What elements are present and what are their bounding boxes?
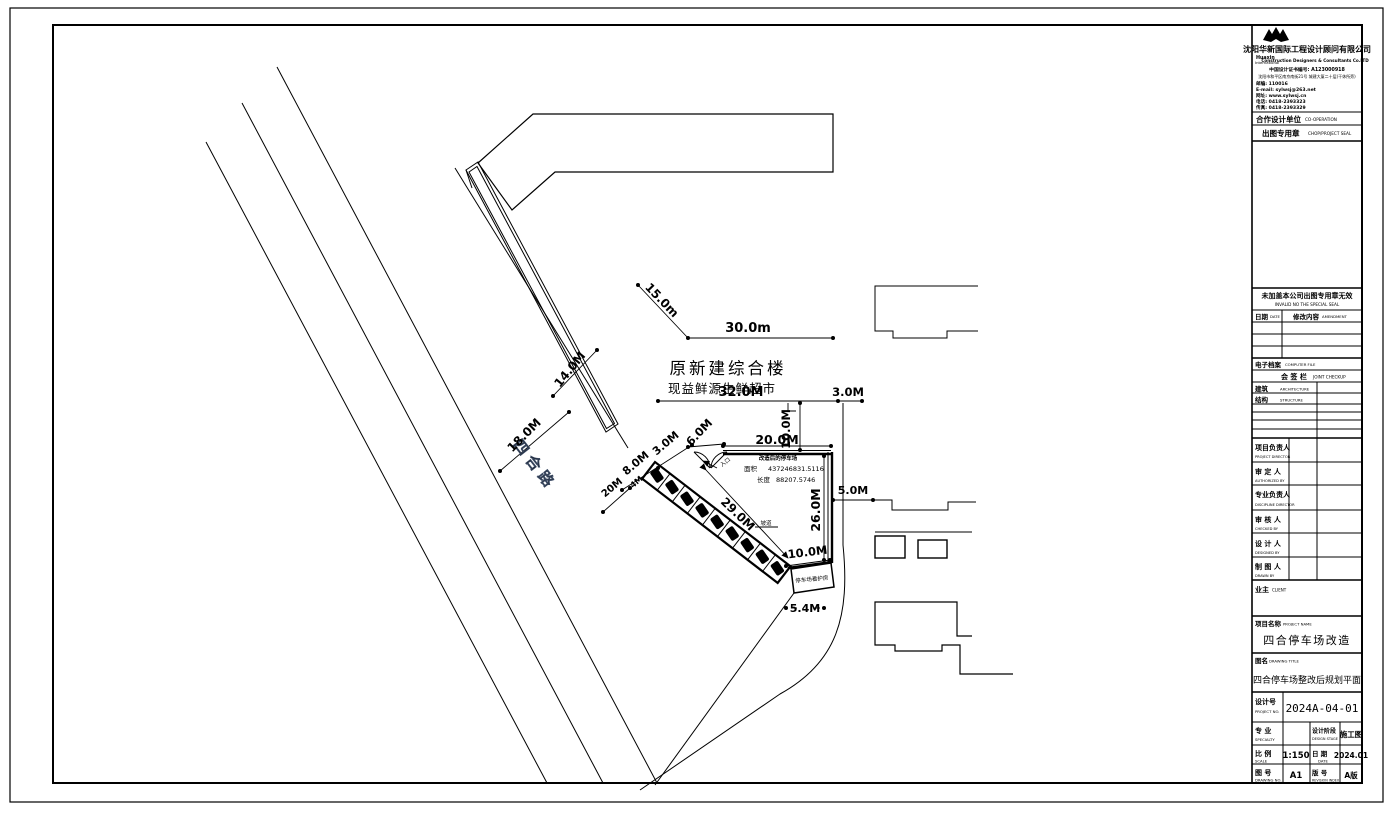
right-building-middle (873, 500, 976, 558)
building-label-main: 原新建综合楼 (670, 359, 787, 378)
company-fax: 传真: 0418-2393329 (1255, 104, 1306, 111)
rev-label-en: REVISION INDEX (1312, 779, 1340, 783)
cad-canvas: 原新建综合楼 现益鲜源生鲜超市 四合路 改造后的停车场 面积 437246831… (0, 0, 1392, 813)
dim-5-4m: 5.4M (790, 602, 820, 615)
company-web: 网址: www.sylwsj.cn (1256, 92, 1306, 99)
sheet-frame (10, 8, 1383, 802)
struct-label-cn: 结构 (1255, 395, 1269, 404)
design-no-label-en: PROJECT NO. (1255, 709, 1280, 714)
arch-label-en: ARCHITECTURE (1280, 387, 1310, 392)
drawing-title-label-en: DRAWING TITLE (1269, 659, 1300, 664)
invalid-note-en: INVALID NO THE SPECIAL SEAL (1275, 302, 1340, 307)
company-logo-icon (1263, 27, 1289, 42)
design-no-label-cn: 设计号 (1255, 697, 1276, 706)
specialty-label-en: SPECIALTY (1255, 737, 1275, 742)
rev-date-en: DATE (1270, 314, 1280, 319)
dwg-no-value: A1 (1290, 771, 1303, 781)
dwg-no-label-en: DRAWING NO. (1255, 778, 1282, 783)
design-no-value: 2024A-04-01 (1286, 702, 1359, 715)
personnel-label-cn: 专业负责人 (1255, 490, 1291, 499)
dim-30m: 30.0m (725, 321, 771, 336)
drawing-sheet: 原新建综合楼 现益鲜源生鲜超市 四合路 改造后的停车场 面积 437246831… (0, 0, 1392, 813)
curb-strip (466, 162, 618, 432)
company-cert: 中国设计证书编号: A123000918 (1269, 66, 1345, 73)
date-label-cn: 日 期 (1312, 749, 1328, 758)
length-value: 88207.5746 (776, 476, 815, 484)
rev-amend-en: AMENDMENT (1322, 314, 1348, 319)
client-label-en: CLIENT (1272, 588, 1287, 593)
personnel-label-cn: 审 定 人 (1255, 467, 1282, 476)
joint-label-cn: 会 签 栏 (1281, 372, 1307, 381)
dim-10m-bottom: 10.0M (787, 543, 828, 562)
company-tel: 电话: 0418-2393323 (1256, 98, 1306, 105)
project-name-value: 四合停车场改造 (1263, 633, 1351, 647)
dim-3m: 3.0M (832, 385, 864, 399)
personnel-label-en: DRAWN BY (1255, 574, 1275, 578)
company-address: 沈阳市和平区南京南街21号 城建大厦二十层(干休所旁) (1258, 73, 1356, 79)
seal-row-label-cn: 出图专用章 (1262, 128, 1300, 138)
date-label-en: DATE (1318, 759, 1328, 764)
company-name-cn: 沈阳华新国际工程设计顾问有限公司 (1243, 44, 1371, 54)
company-zip: 邮编: 110016 (1256, 80, 1288, 87)
guard-house-label: 停车场看护房 (795, 574, 829, 585)
dim-5m: 5.0M (838, 484, 868, 497)
scale-label-en: SCALE (1255, 759, 1268, 764)
dim-32m: 32.0M (718, 385, 763, 400)
title-block: 沈阳华新国际工程设计顾问有限公司 Huaxin International Co… (1243, 25, 1371, 783)
scale-label-cn: 比 例 (1255, 749, 1271, 758)
stage-value: 施工图 (1340, 729, 1363, 739)
scale-value: 1:150 (1282, 751, 1309, 761)
personnel-label-en: DISCIPLINE DIRECTOR (1255, 503, 1295, 507)
project-label-en: PROJECT NAME (1283, 622, 1312, 627)
cooperation-label-cn: 合作设计单位 (1256, 114, 1301, 124)
dwg-no-label-cn: 图 号 (1255, 768, 1271, 777)
dim-15m: 15.0m (642, 280, 681, 320)
dim-20m-b: 20M (600, 476, 625, 500)
company-name-en: Construction Designers & Consultants Co.… (1261, 58, 1369, 63)
right-building-bottom (875, 602, 1013, 674)
personnel-label-cn: 审 核 人 (1255, 515, 1282, 524)
personnel-label-cn: 制 图 人 (1255, 562, 1282, 571)
length-label: 长度 (757, 475, 771, 484)
dim-3m-b: 3.0M (650, 429, 682, 459)
dim-26m: 26.0M (808, 488, 823, 531)
personnel-label-en: PROJECT DIRECTOR (1255, 455, 1291, 459)
site-plan (206, 67, 1013, 790)
client-label-cn: 业主 (1255, 585, 1269, 594)
stage-label-cn: 设计阶段 (1312, 727, 1336, 735)
site-boundary (640, 403, 845, 790)
arch-label-cn: 建筑 (1254, 384, 1269, 393)
drawing-title-label-cn: 图名 (1255, 656, 1268, 665)
seal-row-label-en: CHOP/PROJECT SEAL (1308, 131, 1352, 136)
top-building-outline (478, 114, 833, 210)
right-building-top (875, 286, 978, 338)
invalid-note-cn: 未加盖本公司出图专用章无效 (1262, 291, 1354, 300)
personnel-label-en: AUTHORIZED BY (1255, 479, 1285, 483)
personnel-label-cn: 项目负责人 (1255, 443, 1291, 452)
personnel-label-en: CHECKED BY (1255, 527, 1279, 531)
dim-6m: 6.0M (683, 416, 715, 449)
drawing-title-value: 四合停车场整改后规划平面 (1253, 674, 1361, 686)
road-lines (206, 67, 657, 783)
area-value: 437246831.5116 (768, 465, 824, 473)
rev-label-cn: 版 号 (1311, 768, 1328, 777)
personnel-label-cn: 设 计 人 (1255, 539, 1282, 548)
date-value: 2024.01 (1334, 751, 1368, 760)
efile-label-cn: 电子档案 (1255, 360, 1282, 369)
rev-amend-cn: 修改内容 (1292, 312, 1320, 321)
company-header: 沈阳华新国际工程设计顾问有限公司 Huaxin International Co… (1243, 27, 1371, 111)
company-email: E-mail: sylwsj@263.net (1256, 87, 1317, 93)
project-label-cn: 项目名称 (1255, 619, 1282, 628)
stage-label-en: DESIGN STAGE (1312, 737, 1338, 741)
specialty-label-cn: 专 业 (1255, 726, 1271, 735)
joint-label-en: JOINT CHECKUP (1312, 375, 1346, 380)
efile-label-en: COMPUTER FILE (1285, 362, 1316, 367)
cooperation-label-en: CO-OPERATION (1305, 117, 1337, 122)
ramp-label: 坡道 (760, 519, 772, 527)
rev-date-cn: 日期 (1255, 312, 1269, 321)
area-label: 面积 (744, 464, 758, 473)
lot-header-label: 改造后的停车场 (759, 454, 798, 462)
struct-label-en: STRUCTURE (1280, 398, 1304, 403)
rev-value: A版 (1344, 770, 1358, 780)
dim-20m: 20.0M (755, 432, 798, 447)
personnel-label-en: DESIGNED BY (1255, 551, 1280, 555)
